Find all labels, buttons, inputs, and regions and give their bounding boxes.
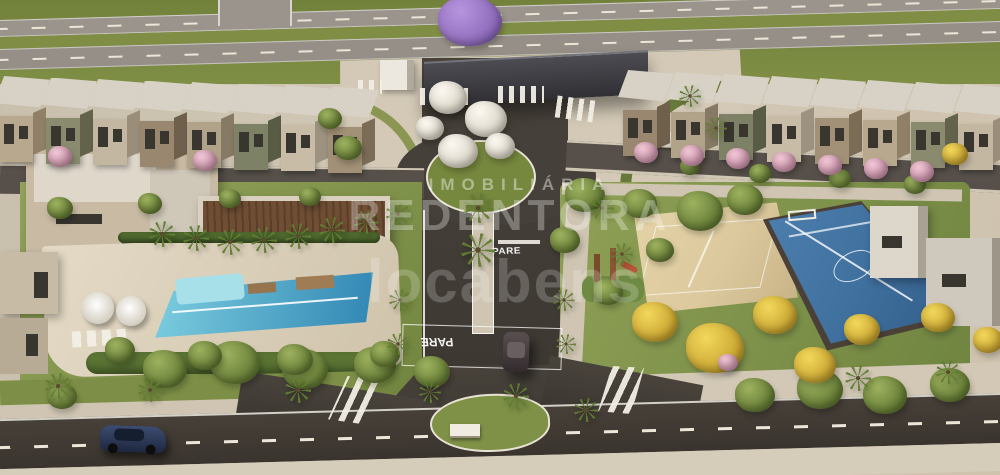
tree-yellow-ipe [753,296,797,334]
palm-tree [285,223,311,249]
tree-white-ipe [416,116,444,140]
palm-tree [319,217,345,243]
tree-yellow-ipe [973,327,1000,353]
tree-green [735,378,775,412]
tree-white-ipe [465,101,507,137]
palm-tree [419,381,441,403]
tree-pink-ipe [864,158,888,179]
palm-tree [217,229,243,255]
palm-tree [574,398,598,422]
tree-white-ipe [438,134,478,168]
palm-tree [611,243,633,265]
palm-tree [705,117,727,139]
tree-green [188,341,222,370]
tree-green [47,197,73,219]
tree-green [105,337,135,363]
tree-green [334,136,362,160]
tree-green [277,344,313,375]
tree-green [318,108,342,129]
vegetation [0,0,1000,475]
tree-green [550,227,580,253]
tree-green [299,187,321,206]
palm-tree [285,377,311,403]
tree-green [593,279,623,305]
tree-yellow-ipe [942,143,968,165]
tree-green [138,193,162,214]
tree-pink-ipe [48,146,72,167]
palm-tree [503,383,529,409]
palm-tree [389,289,411,311]
palm-tree [936,360,960,384]
palm-tree [354,210,378,234]
tree-green [749,164,771,183]
palm-tree [149,221,175,247]
tree-green [646,238,674,262]
palm-tree [45,373,71,399]
palm-tree [463,193,493,223]
palm-tree [386,202,410,226]
tree-pink-ipe [818,155,842,176]
tree-yellow-ipe [632,302,678,342]
tree-pink-ipe [193,150,217,171]
palm-tree [183,225,209,251]
tree-yellow-ipe [921,303,955,332]
palm-tree [553,289,575,311]
tree-green [623,189,657,218]
tree-green [727,184,763,215]
palm-tree [590,196,614,220]
palm-tree [138,378,162,402]
tree-pink-ipe [726,148,750,169]
tree-yellow-ipe [844,314,880,345]
tree-green [219,189,241,208]
palm-tree [387,333,409,355]
tree-pink-ipe [910,161,934,182]
tree-pink-ipe [772,152,796,173]
palm-tree [845,365,871,391]
aerial-condominium-rendering: PARE PARE [0,0,1000,475]
tree-white-ipe [485,133,515,159]
tree-green [677,191,723,231]
tree-pink-ipe [718,354,738,371]
tree-yellow-ipe [794,347,836,383]
tree-pink-ipe [680,145,704,166]
tree-pink-ipe [634,142,658,163]
palm-tree [679,85,701,107]
tree-white-ipe [429,81,467,114]
palm-tree [251,227,277,253]
palm-tree [461,233,495,267]
palm-tree [556,334,576,354]
